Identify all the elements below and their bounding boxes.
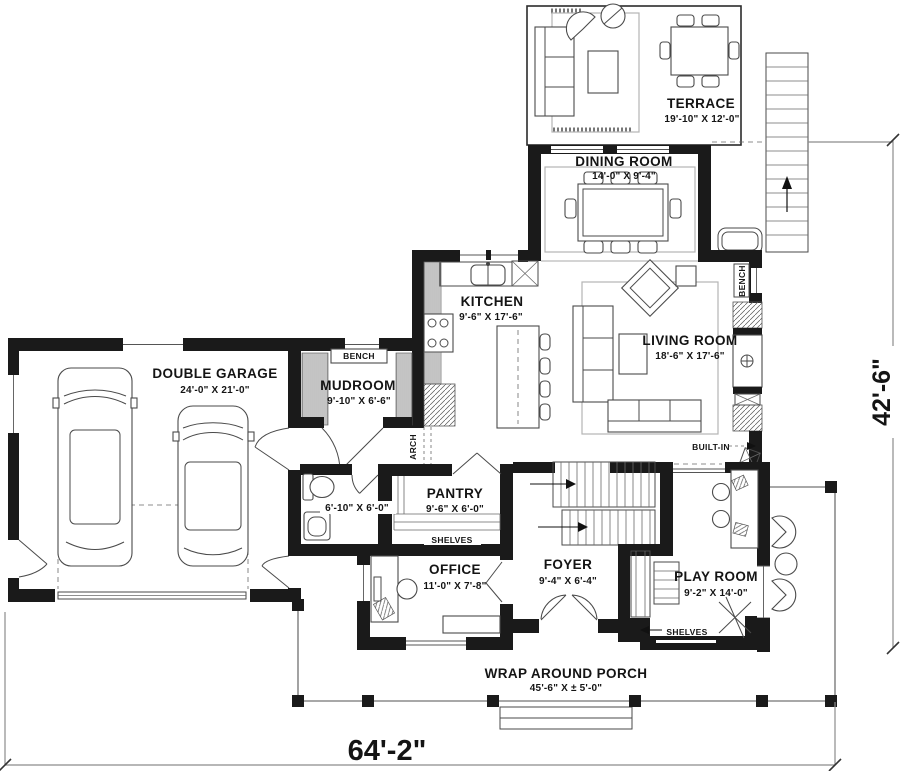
playroom-dims: 9'-2" X 14'-0" [684, 588, 748, 599]
powder-dims: 6'-10" X 6'-0" [325, 503, 389, 514]
sink [304, 512, 330, 540]
living-room [513, 250, 766, 474]
floor-plan-drawing: TERRACE 19'-10" X 12'-0" DINING ROOM 14'… [0, 0, 900, 771]
kitchen [412, 250, 550, 428]
porch-label: WRAP AROUND PORCH [485, 666, 648, 681]
interior-stairs [530, 462, 655, 545]
kitchen-sink [471, 262, 505, 285]
office-label: OFFICE [429, 562, 481, 577]
pantry-shelves [394, 514, 500, 530]
side-door [19, 540, 47, 577]
foyer [505, 462, 673, 633]
living-label: LIVING ROOM [642, 333, 737, 348]
playroom-label: PLAY ROOM [674, 569, 758, 584]
side-table [676, 266, 696, 286]
porch-door [262, 556, 289, 588]
kitchen-dims: 9'-6" X 17'-6" [459, 312, 523, 323]
terrace-dining-set [660, 15, 739, 87]
terrace-coffee-table [588, 51, 618, 93]
powder-door [352, 475, 378, 493]
refrigerator [424, 384, 455, 426]
mudroom-label: MUDROOM [320, 378, 396, 393]
garage-label: DOUBLE GARAGE [152, 366, 277, 381]
overall-height-dim: 42'-6" [868, 358, 896, 426]
dining-dims: 14'-0" X 9'-4" [592, 171, 656, 182]
mudroom-door [255, 428, 289, 470]
desk-chair [713, 511, 730, 528]
kitchen-island [497, 326, 550, 428]
bench-annotation: BENCH [343, 351, 375, 361]
car-sedan [173, 406, 254, 566]
dining-label: DINING ROOM [575, 154, 672, 169]
kitchen-label: KITCHEN [461, 294, 524, 309]
desk-chair [397, 579, 417, 599]
toilet [303, 474, 334, 500]
front-double-door [541, 595, 597, 620]
built-in-annotation: BUILT-IN [692, 442, 730, 452]
arch-annotation: ARCH [408, 434, 418, 460]
foyer-dims: 9'-4" X 6'-4" [539, 576, 597, 587]
porch-table [775, 553, 797, 575]
stair-arrow-icon [578, 522, 588, 532]
stair-arrow-icon [566, 479, 576, 489]
foyer-label: FOYER [544, 557, 593, 572]
terrace-dims: 19'-10" X 12'-0" [664, 114, 739, 125]
labels: TERRACE 19'-10" X 12'-0" DINING ROOM 14'… [152, 96, 897, 767]
corner-cabinet [512, 261, 538, 286]
wardrobe [631, 551, 650, 617]
mudroom-dims: 9'-10" X 6'-6" [327, 396, 391, 407]
terrace-label: TERRACE [667, 96, 735, 111]
living-dims: 18'-6" X 17'-6" [655, 351, 725, 362]
lockers [396, 353, 412, 425]
shelves-annotation: SHELVES [431, 535, 472, 545]
side-shelves [398, 476, 404, 514]
pantry-dims: 9'-6" X 6'-0" [426, 504, 484, 515]
stove [424, 314, 453, 352]
dining-table-set [565, 172, 681, 253]
counter-run [424, 262, 441, 314]
arch-opening [424, 427, 431, 467]
porch-chair [772, 516, 796, 548]
credenza [443, 616, 500, 633]
garage-dims: 24'-0" X 21'-0" [180, 385, 250, 396]
counter-run [424, 352, 441, 384]
dimension-annotations [0, 134, 899, 771]
craft-desk [713, 470, 759, 548]
floor-plan-page: TERRACE 19'-10" X 12'-0" DINING ROOM 14'… [0, 0, 900, 771]
terrace-round-chair [601, 4, 625, 28]
garage-door [55, 589, 250, 602]
kitchen-window [460, 250, 518, 260]
terrace-sofa [535, 27, 574, 116]
office-desk [371, 556, 417, 622]
pantry-double-door [453, 453, 501, 474]
overall-width-dim: 64'-2" [348, 735, 427, 767]
porch-dims: 45'-6" X ± 5'-0" [530, 683, 602, 694]
porch-chair [772, 579, 796, 611]
stair-arrow-icon [782, 176, 792, 189]
bench-annotation: BENCH [737, 265, 747, 297]
exterior-stairs [712, 53, 808, 254]
shelves-annotation: SHELVES [666, 627, 707, 637]
car-suv [53, 368, 137, 566]
desk-chair [713, 484, 730, 501]
pantry-label: PANTRY [427, 486, 483, 501]
office [357, 544, 513, 650]
terrace-fan-chair [566, 12, 595, 40]
armchair [622, 260, 679, 317]
office-dims: 11'-0" X 7'-8" [423, 581, 486, 592]
porch-seating [772, 516, 797, 611]
office-double-door [486, 562, 502, 602]
